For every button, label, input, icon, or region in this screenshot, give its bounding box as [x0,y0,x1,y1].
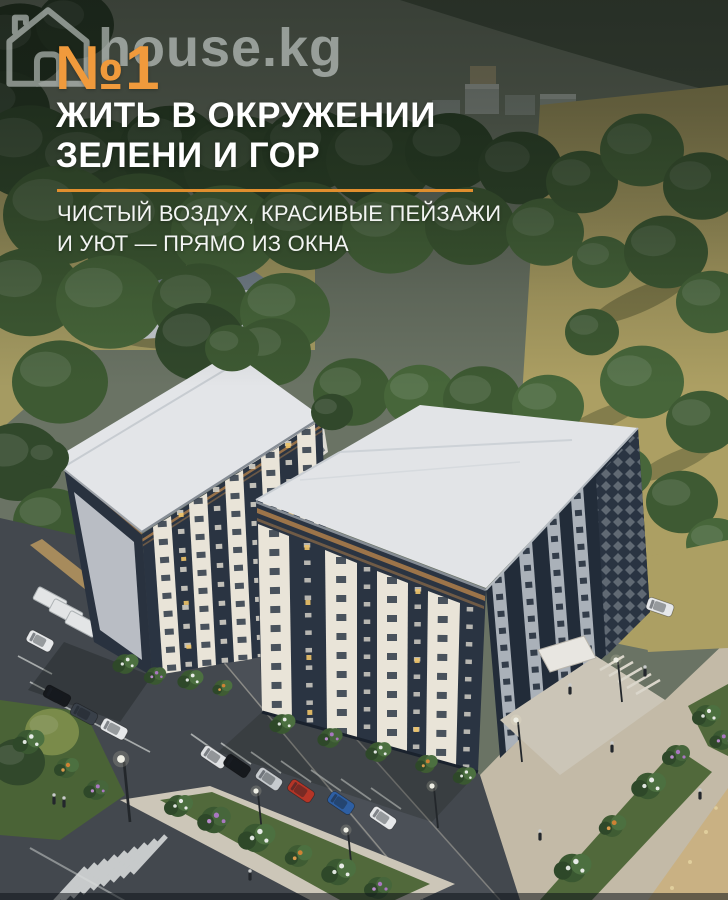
listing-photo-poster: house.kg №1 ЖИТЬ В ОКРУЖЕНИИ ЗЕЛЕНИ И ГО… [0,0,728,900]
subtitle-line-1: ЧИСТЫЙ ВОЗДУХ, КРАСИВЫЕ ПЕЙЗАЖИ [57,199,501,229]
watermark: house.kg [2,4,343,90]
subtitle-line-2: И УЮТ — ПРЯМО ИЗ ОКНА [57,229,501,259]
subtitle: ЧИСТЫЙ ВОЗДУХ, КРАСИВЫЕ ПЕЙЗАЖИ И УЮТ — … [57,199,501,259]
headline-line-2: ЗЕЛЕНИ И ГОР [56,136,436,176]
headline: ЖИТЬ В ОКРУЖЕНИИ ЗЕЛЕНИ И ГОР [56,96,436,176]
accent-divider [57,189,473,192]
headline-line-1: ЖИТЬ В ОКРУЖЕНИИ [56,96,436,136]
rank-number: №1 [55,38,161,100]
